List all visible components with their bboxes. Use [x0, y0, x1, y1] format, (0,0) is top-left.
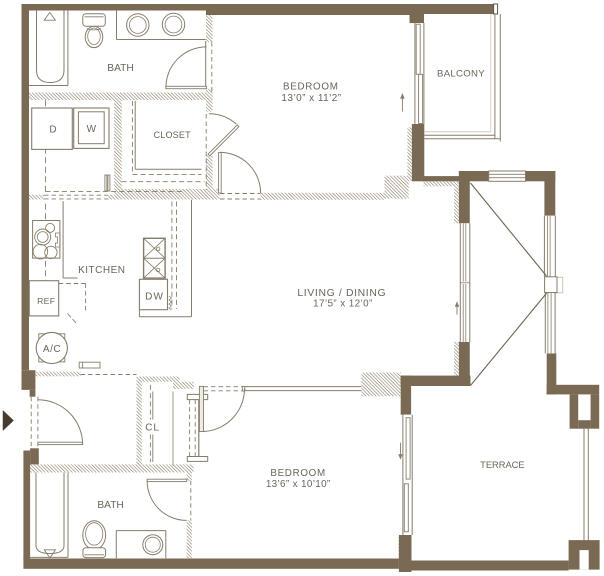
svg-text:LIVING / DINING: LIVING / DINING [297, 288, 386, 299]
svg-text:17’5” x 12’0”: 17’5” x 12’0” [313, 299, 373, 310]
svg-text:A/C: A/C [43, 344, 61, 355]
svg-text:DW: DW [145, 291, 164, 302]
svg-text:TERRACE: TERRACE [480, 460, 524, 470]
svg-text:13’0” x 11’2”: 13’0” x 11’2” [281, 93, 341, 104]
svg-text:BEDROOM: BEDROOM [283, 81, 339, 92]
svg-text:CLOSET: CLOSET [154, 130, 192, 140]
svg-text:REF: REF [37, 296, 55, 306]
svg-text:KITCHEN: KITCHEN [78, 265, 125, 276]
svg-text:W: W [87, 124, 97, 135]
svg-text:BEDROOM: BEDROOM [270, 468, 326, 479]
svg-text:BATH: BATH [97, 500, 123, 511]
svg-text:BALCONY: BALCONY [437, 69, 485, 80]
svg-text:D: D [49, 125, 56, 136]
svg-text:CL: CL [145, 423, 159, 434]
svg-text:BATH: BATH [107, 63, 133, 74]
svg-text:13’6” x 10’10”: 13’6” x 10’10” [266, 479, 331, 490]
